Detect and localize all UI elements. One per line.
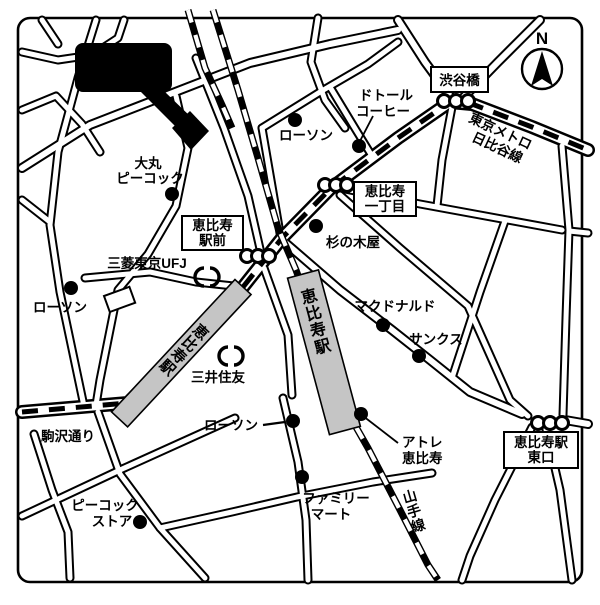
boxed-label-itchome-line2: 一丁目 — [365, 199, 406, 214]
poi-dot-lawson-west — [64, 281, 78, 295]
label-lawson-north: ローソン — [279, 128, 333, 143]
poi-dot-familymart — [295, 470, 309, 484]
label-lawson-south: ローソン — [204, 418, 258, 433]
exit-circles-east-exit — [532, 417, 569, 430]
poi-dot-lawson-south — [286, 414, 300, 428]
poi-dot-mcdonalds — [376, 318, 390, 332]
poi-dot-lawson-north — [288, 113, 302, 127]
boxed-label-ebisu-east-exit: 恵比寿駅 東口 — [504, 432, 578, 468]
label-suginokiya: 杉の木屋 — [326, 234, 380, 250]
boxed-label-shibuyabashi: 渋谷橋 — [431, 67, 488, 92]
site-marker: 現地 — [75, 43, 172, 92]
label-mcdonalds: マクドナルド — [355, 299, 436, 314]
label-mitsui-sumitomo: 三井住友 — [191, 369, 245, 385]
boxed-label-shibuyabashi-text: 渋谷橋 — [439, 72, 480, 88]
site-marker-text: 現地 — [87, 47, 159, 88]
label-doutor-line1: ドトール — [359, 88, 413, 103]
poi-dot-doutor — [352, 139, 366, 153]
boxed-label-east-exit-line2: 東口 — [528, 449, 555, 465]
area-map: 恵比寿駅 恵比寿駅 — [0, 0, 600, 600]
exit-circles-ekimae — [241, 250, 276, 263]
label-atre-line2: 恵比寿 — [402, 450, 443, 466]
label-sunkus: サンクス — [409, 332, 463, 347]
boxed-label-east-exit-line1: 恵比寿駅 — [514, 434, 568, 450]
label-doutor-line2: コーヒー — [356, 104, 410, 119]
poi-dot-sunkus — [412, 349, 426, 363]
label-familymart-line1: ファミリー — [302, 491, 370, 506]
label-lawson-west: ローソン — [33, 300, 87, 315]
label-familymart-line2: マート — [311, 507, 352, 522]
label-mitsubishi-ufj: 三菱東京UFJ — [107, 255, 187, 271]
poi-dot-peacock-store — [133, 515, 147, 529]
exit-circles-itchome — [319, 179, 354, 192]
boxed-label-ebisu-itchome: 恵比寿 一丁目 — [354, 182, 416, 216]
boxed-label-ebisu-ekimae: 恵比寿 駅前 — [182, 216, 243, 250]
poi-dot-daimaru-peacock — [165, 187, 179, 201]
label-daimaru-line1: 大丸 — [135, 155, 162, 171]
boxed-label-ekimae-line1: 恵比寿 — [192, 217, 233, 233]
compass-n-label: N — [536, 29, 548, 48]
map-canvas: 恵比寿駅 恵比寿駅 — [0, 0, 600, 600]
boxed-label-itchome-line1: 恵比寿 — [365, 183, 406, 199]
label-komazawa-dori: 駒沢通り — [41, 428, 95, 444]
exit-circles-shibuyabashi — [438, 95, 475, 108]
label-daimaru-line2: ピーコック — [116, 171, 184, 186]
label-atre-line1: アトレ — [402, 435, 443, 450]
boxed-label-ekimae-line2: 駅前 — [199, 232, 226, 248]
label-peacock-store-line1: ピーコック — [71, 498, 139, 513]
poi-dot-suginokiya — [309, 219, 323, 233]
label-peacock-store-line2: ストア — [92, 514, 133, 529]
